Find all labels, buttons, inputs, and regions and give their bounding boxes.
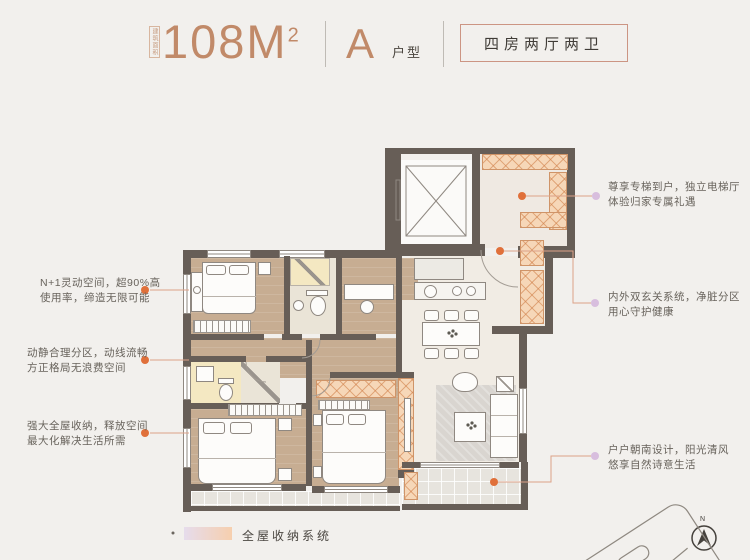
annotation-line: 动静合理分区，动线流畅: [27, 346, 148, 361]
legend-swatch: [184, 527, 232, 540]
annotation-line: 方正格局无浪费空间: [27, 361, 148, 376]
annotation-line: 使用率，缔造无限可能: [40, 291, 161, 306]
annotation-left-3: 强大全屋收纳，释放空间 最大化解决生活所需: [27, 419, 148, 448]
annotation-line: 强大全屋收纳，释放空间: [27, 419, 148, 434]
elevator-icon: [396, 166, 466, 236]
annotation-line: 最大化解决生活所需: [27, 434, 148, 449]
annotation-left-2: 动静合理分区，动线流畅 方正格局无浪费空间: [27, 346, 148, 375]
leader-dot-orange: [141, 192, 526, 486]
annotation-line: 尊享专梯到户，独立电梯厅: [608, 180, 740, 195]
annotation-line: 户户朝南设计，阳光清风: [608, 443, 729, 458]
floorplan-page: 建筑面积 108M2 A 户型 四房两厅两卫: [0, 0, 750, 560]
annotation-right-3: 户户朝南设计，阳光清风 悠享自然诗意生活: [608, 443, 729, 472]
leader-lines: [150, 196, 592, 482]
legend-label: 全屋收纳系统: [242, 527, 332, 544]
site-plan-sketch: [546, 499, 740, 560]
legend-dot: [172, 532, 175, 535]
annotation-right-2: 内外双玄关系统，净脏分区 用心守护健康: [608, 290, 740, 319]
annotation-line: 体验归家专属礼遇: [608, 195, 740, 210]
annotation-line: 悠享自然诗意生活: [608, 458, 729, 473]
annotation-line: 内外双玄关系统，净脏分区: [608, 290, 740, 305]
annotation-left-1: N+1灵动空间，超90%高 使用率，缔造无限可能: [40, 276, 161, 305]
compass-icon: [692, 526, 716, 550]
compass-north-label: N: [700, 516, 705, 523]
leader-dot-lavender: [591, 192, 600, 460]
plant-icon: [447, 329, 476, 429]
annotation-line: 用心守护健康: [608, 305, 740, 320]
annotation-line: N+1灵动空间，超90%高: [40, 276, 161, 291]
annotation-right-1: 尊享专梯到户，独立电梯厅 体验归家专属礼遇: [608, 180, 740, 209]
door-arc-icon: [246, 250, 518, 396]
